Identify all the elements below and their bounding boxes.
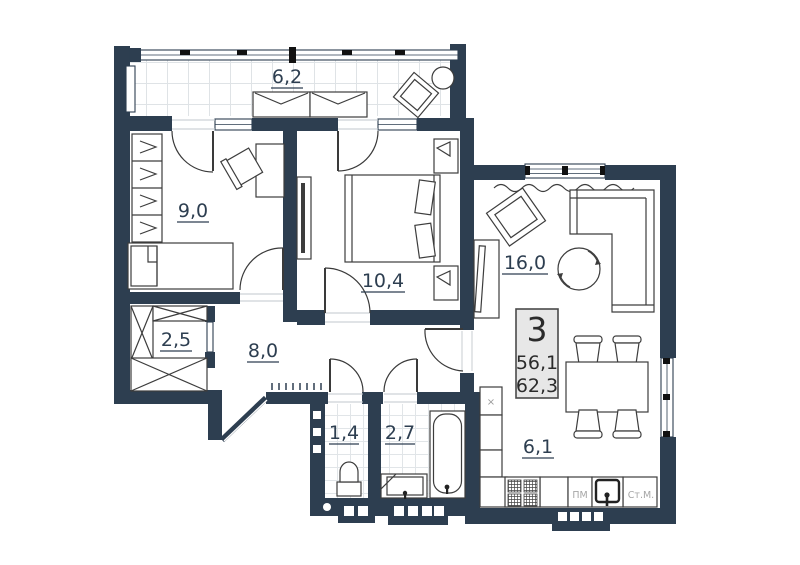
washer-label: Ст.М.: [628, 490, 654, 501]
wall-wc-bath-divider: [368, 404, 381, 498]
wc-door: [330, 359, 363, 392]
dining-table-set: [566, 336, 648, 438]
dining-chair: [613, 336, 641, 364]
counter-sink-mark: ×: [487, 397, 495, 408]
toilet: [337, 462, 361, 496]
kitchen-furniture: × ПМ Ст.М.: [480, 336, 657, 507]
wall-balcony-bottom-c: [417, 118, 450, 131]
bedroom1-window: [215, 119, 252, 130]
wall-living-top-b: [605, 165, 676, 180]
wall-bedroom-divider: [283, 131, 297, 322]
wall-bedroom2-living: [460, 118, 474, 330]
room-label-bedroom2: 10,4: [362, 270, 404, 292]
dining-chair: [574, 410, 602, 438]
kitchen-sink: [592, 477, 623, 507]
dishwasher-label: ПМ: [572, 490, 587, 501]
wall-entry: [266, 392, 328, 404]
bedroom1-door: [240, 248, 283, 290]
balcony-door-bedroom1: [172, 131, 213, 172]
floor-plan-page: × ПМ Ст.М.: [0, 0, 800, 565]
wall-balcony-bottom-b: [252, 118, 338, 131]
room-label-storage: 2,5: [161, 329, 191, 351]
stove: [505, 477, 540, 507]
wall-bedroom2-bottom-a: [297, 310, 325, 325]
balcony-side-window: [126, 66, 135, 112]
nightstand-bottom: [434, 266, 458, 300]
entrance-threshold-ticks: [272, 383, 321, 390]
living-furniture: [474, 185, 654, 319]
bathroom-door: [384, 359, 417, 392]
storage-sliding-door: [207, 322, 213, 352]
apartment-number: 3: [527, 310, 548, 349]
wall-kitchen-door-pier: [460, 373, 474, 398]
wardrobe-bedroom1: [132, 134, 162, 242]
kitchen-door: [425, 329, 463, 371]
room-label-balcony: 6,2: [272, 66, 302, 88]
living-top-window: [525, 164, 605, 178]
floor-plan-svg: × ПМ Ст.М.: [0, 0, 800, 565]
total-area-value: 62,3: [516, 375, 558, 397]
balcony-door-bedroom2: [338, 131, 378, 171]
tv-cabinet-living: [474, 240, 499, 318]
dining-chair: [574, 336, 602, 364]
room-label-bedroom1: 9,0: [178, 200, 208, 222]
kitchen-right-window: [661, 358, 673, 437]
wc-fixtures: [337, 462, 361, 496]
room-label-kitchen: 6,1: [523, 436, 553, 458]
coffee-table-round: [557, 248, 601, 290]
balcony-table: [432, 67, 454, 89]
bathtub: [430, 411, 465, 498]
living-area-value: 56,1: [516, 352, 558, 374]
wall-right-upper: [660, 180, 676, 358]
vanity-sink: [381, 474, 427, 499]
nightstand-top: [434, 139, 458, 173]
wall-entry-jog: [208, 404, 222, 440]
wall-living-top-a: [474, 165, 525, 180]
room-label-hall: 8,0: [248, 340, 278, 362]
room-label-wc: 1,4: [329, 422, 359, 444]
wall-bedroom1-bottom: [114, 292, 240, 304]
room-label-bathroom: 2,7: [385, 422, 415, 444]
wall-balcony-bottom-a: [114, 116, 172, 131]
wall-bath-right: [465, 392, 480, 508]
vent-block-wc: [338, 500, 375, 523]
wall-bedroom2-bottom-b: [370, 310, 474, 325]
armchair: [487, 188, 546, 246]
wall-hall-bottom: [114, 390, 222, 404]
bed-double: [345, 175, 440, 262]
lounge-chairs: [253, 92, 367, 117]
wall-bath-top: [417, 392, 465, 404]
tv-cabinet-bedroom2: [297, 177, 311, 259]
kitchen-counter-left: ×: [480, 387, 502, 477]
dining-chair: [613, 410, 641, 438]
dining-table: [566, 362, 648, 412]
wall-wc-bath-pier: [362, 392, 383, 404]
entrance-door: [222, 383, 321, 441]
bedroom2-window: [378, 119, 417, 130]
room-label-living: 16,0: [504, 252, 546, 274]
info-box: 3 56,1 62,3: [516, 309, 558, 398]
bed-single: [128, 243, 233, 289]
